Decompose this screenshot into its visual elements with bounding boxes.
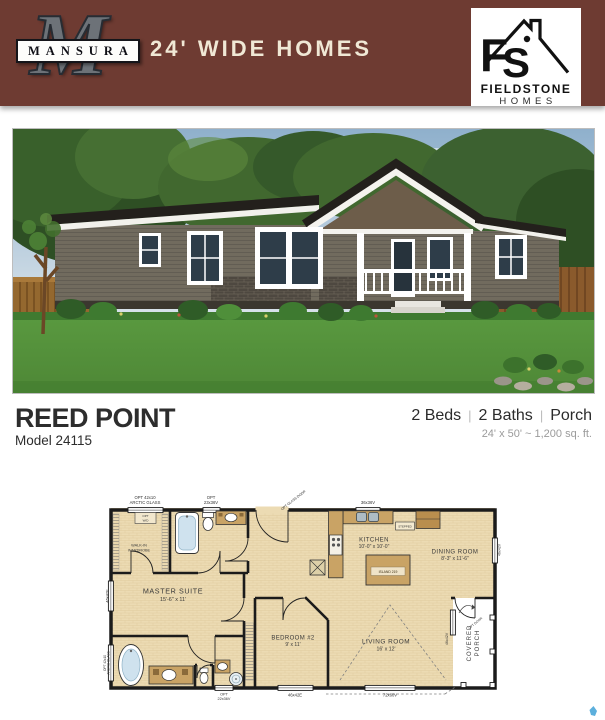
kitchen-sink (357, 513, 367, 522)
label-bedroom2-size: 9' x 11' (285, 642, 300, 648)
vanity-sink (162, 670, 176, 681)
fieldstone-logo: F S FIELDSTONE HOMES (471, 8, 581, 106)
label-arctic-top-2: ARCTIC GLASS (130, 500, 161, 505)
label-stepped: STEPPED (398, 524, 412, 528)
label-46x42v-dining: 46x42V (498, 543, 502, 556)
kitchen-sink (369, 513, 379, 522)
home-dimensions: 24' x 50' ~ 1,200 sq. ft. (411, 428, 592, 440)
label-opt-wd-1: OPT (142, 514, 148, 518)
label-porch-2: PORCH (475, 630, 481, 657)
label-46x42v-porch: 46x42V (445, 632, 449, 645)
utility-closet (310, 560, 325, 575)
label-master-size: 15'-6" x 11' (160, 597, 186, 603)
header: M MANSURA 24' WIDE HOMES F S FIELDSTONE … (0, 0, 605, 106)
label-opt2236-1: OPT (220, 693, 228, 697)
spec-baths: 2 Baths (479, 407, 533, 424)
label-dining-size: 8'-3" x 11'-6" (441, 556, 469, 562)
label-kitchen-size: 10'-0" x 10'-0" (359, 544, 390, 550)
title-bar: REED POINT Model 24115 2 Beds|2 Baths|Po… (15, 404, 592, 454)
label-opt-wd-2: W/D (143, 519, 150, 523)
label-living-size: 16' x 12' (377, 647, 396, 653)
watermark-icon (589, 704, 598, 715)
closet-shelving (246, 623, 254, 680)
spec-porch: Porch (550, 407, 592, 424)
mansura-banner: MANSURA (16, 39, 140, 63)
house-photo (12, 128, 595, 394)
label-46x42e-bottom: 46x42E (288, 693, 302, 698)
house-rendering (13, 129, 594, 393)
label-wardrobe-2: WARDROBE (128, 549, 151, 553)
label-kitchen: KITCHEN (359, 538, 389, 544)
fieldstone-name: FIELDSTONE (481, 82, 572, 96)
label-36x36v: 36x36V (361, 500, 375, 505)
vanity-sink (225, 513, 237, 521)
header-tagline: 24' WIDE HOMES (150, 36, 372, 62)
sink (218, 663, 228, 671)
label-island: ISLAND 219 (379, 570, 398, 574)
fieldstone-sub: HOMES (499, 96, 556, 106)
fs-letter-s: S (502, 39, 530, 86)
fs-dot (524, 36, 530, 42)
toilet (200, 673, 208, 684)
label-46x42e-left: 46x42E (105, 589, 110, 603)
spec-beds: 2 Beds (411, 407, 461, 424)
label-bedroom2: BEDROOM #2 (271, 636, 315, 642)
flyer-page: M MANSURA 24' WIDE HOMES F S FIELDSTONE … (0, 0, 605, 720)
porch-floor (453, 598, 495, 688)
label-opt2236-2: 22x36V (218, 697, 231, 701)
range (330, 535, 343, 555)
wardrobe-shelving (113, 514, 119, 570)
spec-separator: | (533, 408, 550, 423)
label-living: LIVING ROOM (362, 639, 410, 646)
floor-plan: MASTER SUITE 15'-6" x 11' WALK-IN WARDRO… (103, 482, 503, 708)
label-master-suite: MASTER SUITE (143, 587, 203, 596)
label-72x60v: 72x60V (383, 693, 397, 698)
wardrobe-shelving (162, 514, 168, 570)
label-opt-glass-door: OPT GLASS DOOR (280, 489, 307, 511)
label-wardrobe-1: WALK-IN (131, 544, 147, 548)
toilet (203, 518, 213, 531)
label-dining: DINING ROOM (432, 550, 479, 556)
label-opt2336-2: 23x36V (204, 500, 218, 505)
refrigerator (416, 511, 440, 529)
label-arctic-left-2: ARCTIC GLASS (107, 651, 111, 674)
spec-separator: | (461, 408, 478, 423)
specs-row: 2 Beds|2 Baths|Porch (411, 407, 592, 425)
